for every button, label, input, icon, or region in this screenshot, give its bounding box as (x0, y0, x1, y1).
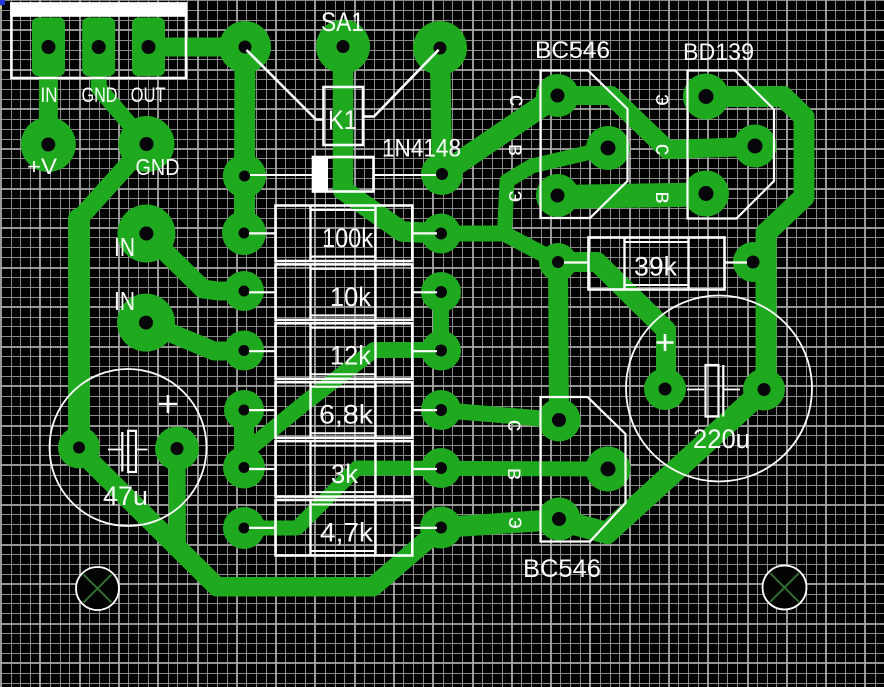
svg-text:BC546: BC546 (523, 555, 601, 583)
svg-text:1N4148: 1N4148 (382, 135, 461, 163)
svg-text:10k: 10k (330, 282, 371, 312)
svg-text:6,8k: 6,8k (319, 400, 374, 430)
svg-text:12k: 12k (330, 341, 371, 371)
svg-text:K1: K1 (328, 105, 357, 135)
svg-text:39k: 39k (634, 252, 677, 282)
svg-text:c: c (505, 95, 531, 107)
svg-text:+V: +V (27, 154, 57, 179)
svg-text:47u: 47u (103, 481, 148, 511)
svg-text:э: э (651, 94, 677, 106)
svg-text:c: c (651, 144, 677, 156)
svg-text:э: э (504, 517, 530, 529)
svg-text:в: в (504, 144, 530, 156)
svg-text:100k: 100k (322, 223, 373, 253)
svg-text:IN: IN (41, 84, 58, 107)
svg-text:в: в (503, 468, 529, 480)
svg-text:c: c (503, 420, 529, 432)
svg-text:BC546: BC546 (535, 37, 610, 64)
svg-text:SA1: SA1 (321, 7, 364, 37)
svg-text:э: э (504, 191, 530, 203)
svg-text:4,7k: 4,7k (320, 518, 374, 548)
svg-text:IN: IN (114, 286, 135, 316)
svg-text:в: в (651, 191, 677, 203)
svg-text:BD139: BD139 (683, 39, 754, 66)
svg-text:3k: 3k (331, 459, 358, 489)
svg-text:220u: 220u (693, 424, 750, 454)
svg-text:GND: GND (136, 154, 180, 180)
svg-text:GND: GND (82, 84, 118, 107)
svg-text:IN: IN (114, 232, 135, 262)
svg-text:OUT: OUT (131, 84, 166, 107)
